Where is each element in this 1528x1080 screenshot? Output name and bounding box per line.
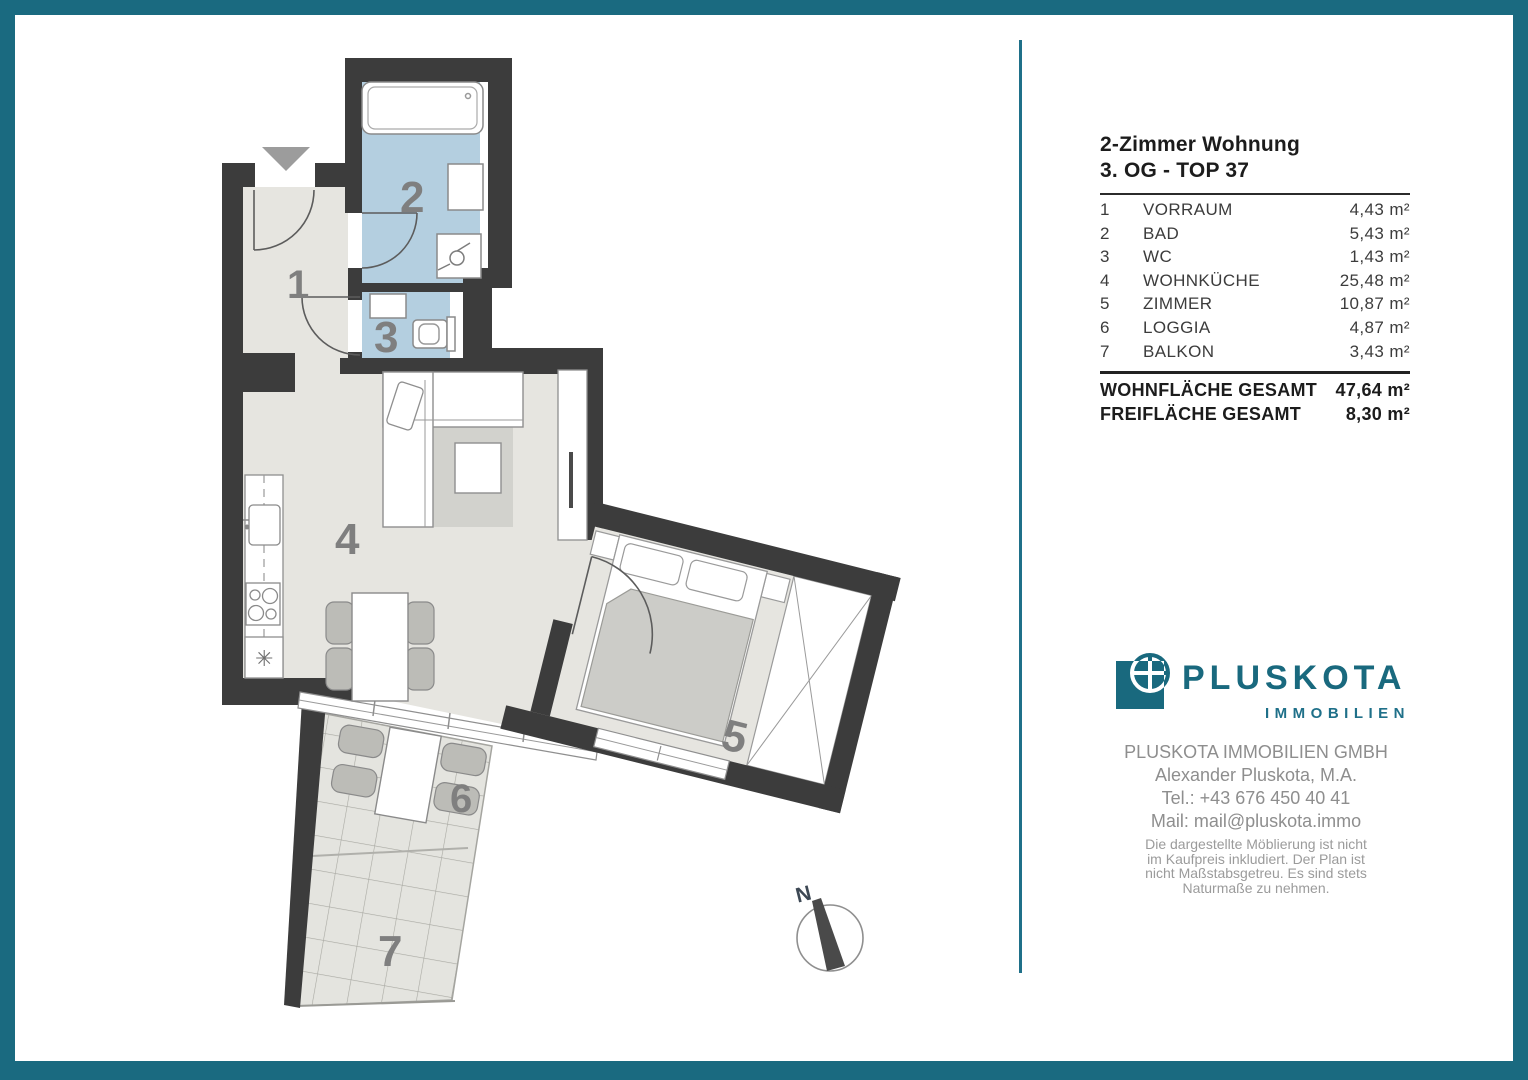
room-name: BALKON [1143, 342, 1350, 362]
room-label-wohnkueche: 4 [335, 515, 360, 564]
compass-needle-icon [812, 898, 845, 971]
table-row: 1 VORRAUM 4,43 m² [1100, 200, 1410, 224]
total-value: 47,64 m² [1336, 380, 1410, 401]
room-name: BAD [1143, 224, 1350, 244]
toilet-cistern [447, 317, 455, 351]
pluskota-plus-icon [1114, 647, 1180, 713]
totals: WOHNFLÄCHE GESAMT 47,64 m² FREIFLÄCHE GE… [1100, 380, 1410, 428]
total-label: FREIFLÄCHE GESAMT [1100, 404, 1346, 425]
contact-person: Alexander Pluskota, M.A. [1100, 764, 1412, 787]
total-value: 8,30 m² [1346, 404, 1410, 425]
room-name: VORRAUM [1143, 200, 1350, 220]
room-area: 3,43 m² [1350, 342, 1410, 362]
table-row: 5 ZIMMER 10,87 m² [1100, 294, 1410, 318]
washing-machine [448, 164, 483, 210]
room-nr: 6 [1100, 318, 1143, 338]
table-row: 6 LOGGIA 4,87 m² [1100, 318, 1410, 342]
room-area: 10,87 m² [1340, 294, 1410, 314]
chair [406, 602, 434, 644]
total-label: WOHNFLÄCHE GESAMT [1100, 380, 1336, 401]
coffee-table [455, 443, 501, 493]
room-nr: 5 [1100, 294, 1143, 314]
kitchen-sink [249, 505, 280, 545]
logo-subtitle: IMMOBILIEN [1265, 705, 1410, 722]
room-label-vorraum: 1 [287, 263, 309, 307]
rule-thin [1100, 193, 1410, 195]
room-area: 4,43 m² [1350, 200, 1410, 220]
table-row: 2 BAD 5,43 m² [1100, 224, 1410, 248]
table-row: 7 BALKON 3,43 m² [1100, 342, 1410, 366]
company-name: PLUSKOTA IMMOBILIEN GMBH [1100, 741, 1412, 764]
room-nr: 4 [1100, 271, 1143, 291]
table-row: 3 WC 1,43 m² [1100, 247, 1410, 271]
living-area [383, 372, 523, 527]
tv-unit [558, 370, 587, 540]
room-area: 5,43 m² [1350, 224, 1410, 244]
room-label-balkon: 7 [378, 927, 402, 976]
panel-divider [1019, 40, 1022, 973]
room-area: 1,43 m² [1350, 247, 1410, 267]
apartment-subtitle: 3. OG - TOP 37 [1100, 158, 1410, 184]
room-label-bad: 2 [400, 173, 424, 222]
room-area: 4,87 m² [1350, 318, 1410, 338]
info-panel: 2-Zimmer Wohnung 3. OG - TOP 37 1 VORRAU… [1100, 132, 1410, 428]
room-nr: 7 [1100, 342, 1143, 362]
room-nr: 2 [1100, 224, 1143, 244]
north-label: N [793, 882, 813, 908]
washbasin [437, 234, 481, 278]
floor-corridor-gap [295, 358, 340, 392]
room-name: WC [1143, 247, 1350, 267]
contact-phone: Tel.: +43 676 450 40 41 [1100, 787, 1412, 810]
room-table: 1 VORRAUM 4,43 m² 2 BAD 5,43 m² 3 WC 1,4… [1100, 200, 1410, 365]
contact-mail: Mail: mail@pluskota.immo [1100, 810, 1412, 833]
bathtub [362, 82, 483, 134]
room-name: LOGGIA [1143, 318, 1350, 338]
company-logo: PLUSKOTA IMMOBILIEN [1100, 645, 1412, 740]
total-row: WOHNFLÄCHE GESAMT 47,64 m² [1100, 380, 1410, 404]
table-row: 4 WOHNKÜCHE 25,48 m² [1100, 271, 1410, 295]
contact-block: PLUSKOTA IMMOBILIEN GMBH Alexander Plusk… [1100, 741, 1412, 833]
dining-table [352, 593, 408, 701]
freezer-icon: ✳ [255, 646, 273, 671]
kitchen: ✳ [243, 475, 283, 678]
compass: N [793, 882, 863, 971]
total-row: FREIFLÄCHE GESAMT 8,30 m² [1100, 404, 1410, 428]
room-name: WOHNKÜCHE [1143, 271, 1340, 291]
rule-thick [1100, 371, 1410, 374]
tv-icon [569, 452, 573, 508]
room-label-wc: 3 [374, 313, 398, 362]
room-area: 25,48 m² [1340, 271, 1410, 291]
chair [326, 648, 354, 690]
room-nr: 1 [1100, 200, 1143, 220]
apartment-title: 2-Zimmer Wohnung [1100, 132, 1410, 158]
logo-wordmark: PLUSKOTA [1182, 659, 1406, 698]
room-nr: 3 [1100, 247, 1143, 267]
room-label-loggia: 6 [450, 777, 472, 821]
chair [326, 602, 354, 644]
disclaimer: Die dargestellte Möblierung ist nicht im… [1100, 837, 1412, 895]
room-name: ZIMMER [1143, 294, 1340, 314]
chair [406, 648, 434, 690]
